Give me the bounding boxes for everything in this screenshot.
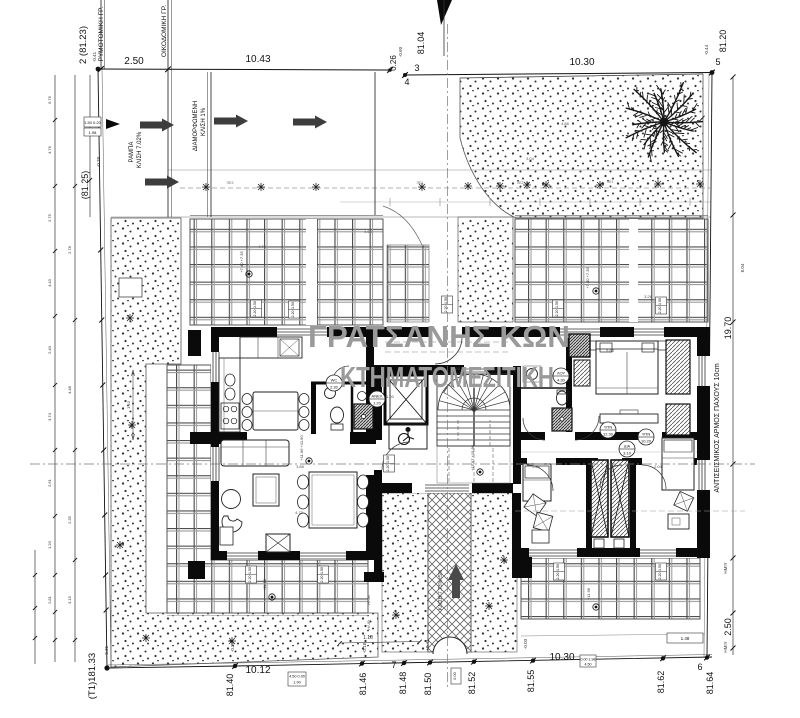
svg-text:1.50: 1.50 <box>248 567 252 574</box>
svg-text:0.00: 0.00 <box>453 672 457 679</box>
svg-text:ΚΛΙΣΗ 7.02%: ΚΛΙΣΗ 7.02% <box>137 131 143 168</box>
svg-text:81.50: 81.50 <box>423 673 433 696</box>
svg-text:-0.18: -0.18 <box>362 642 367 653</box>
svg-text:0.00 1.98: 0.00 1.98 <box>581 658 596 662</box>
svg-text:81.46: 81.46 <box>358 673 368 696</box>
svg-text:ΚΤΗΜΑΤΟΜΕΣΙΤΙΚΗ: ΚΤΗΜΑΤΟΜΕΣΙΤΙΚΗ <box>340 362 554 394</box>
svg-text:2.20: 2.20 <box>555 310 559 317</box>
svg-text:ΗΜΙΥ: ΗΜΙΥ <box>723 641 728 652</box>
svg-text:ΠΕ2: ΠΕ2 <box>517 181 524 185</box>
svg-text:ΚΛΙΣΗ 7.73%<5%: ΚΛΙΣΗ 7.73%<5% <box>438 569 444 610</box>
svg-text:4.50: 4.50 <box>585 663 592 667</box>
svg-text:1.10: 1.10 <box>126 400 131 409</box>
svg-text:-0.60: -0.60 <box>398 46 403 57</box>
svg-text:1.50: 1.50 <box>658 564 662 571</box>
svg-text:2.20: 2.20 <box>320 576 324 583</box>
svg-text:+7.40 +7.35: +7.40 +7.35 <box>585 267 590 289</box>
svg-text:ΔΙΑΜΟΡΦΩΜΕΝΗ: ΔΙΑΜΟΡΦΩΜΕΝΗ <box>193 101 199 151</box>
svg-text:2 (81.23): 2 (81.23) <box>78 26 89 64</box>
svg-text:2.20: 2.20 <box>248 576 252 583</box>
svg-text:4.88: 4.88 <box>561 121 570 126</box>
svg-text:2.81: 2.81 <box>47 595 52 604</box>
svg-text:10.20: 10.20 <box>641 439 652 444</box>
svg-text:-0.39: -0.39 <box>96 156 101 167</box>
svg-text:+7.40 +7.35: +7.40 +7.35 <box>239 251 244 273</box>
svg-text:ΔΙΑ: ΔΙΑ <box>624 444 631 449</box>
svg-text:1.00: 1.00 <box>386 394 395 399</box>
svg-text:+11.96 +11.90: +11.96 +11.90 <box>299 435 304 461</box>
svg-text:2.40: 2.40 <box>47 345 52 354</box>
svg-text:2.20: 2.20 <box>386 465 390 472</box>
svg-text:4.48: 4.48 <box>67 385 72 394</box>
svg-text:3.74: 3.74 <box>47 412 52 421</box>
svg-text:8.04: 8.04 <box>740 263 745 272</box>
svg-text:3.15: 3.15 <box>67 595 72 604</box>
svg-text:81.04: 81.04 <box>416 32 426 55</box>
svg-text:81.62: 81.62 <box>656 671 666 694</box>
svg-text:1.50: 1.50 <box>555 301 559 308</box>
svg-text:-0.44: -0.44 <box>704 44 709 55</box>
svg-text:81.20: 81.20 <box>718 30 728 53</box>
svg-text:1.20: 1.20 <box>373 401 382 406</box>
svg-text:ΗΛΙΘ: ΗΛΙΘ <box>366 620 371 630</box>
svg-text:-0.03: -0.03 <box>523 638 528 649</box>
svg-text:2.78: 2.78 <box>67 245 72 254</box>
svg-text:ΠΕ1: ΠΕ1 <box>417 181 424 185</box>
svg-text:-0.41: -0.41 <box>92 51 97 62</box>
svg-text:4.73: 4.73 <box>258 244 267 249</box>
svg-text:-0.24: -0.24 <box>230 641 235 652</box>
svg-text:3.04: 3.04 <box>532 464 541 469</box>
svg-text:ΛΟΥ: ΛΟΥ <box>557 371 566 376</box>
svg-text:1.20: 1.20 <box>47 540 52 549</box>
svg-text:3.88: 3.88 <box>296 464 305 469</box>
svg-text:1.10: 1.10 <box>363 635 373 641</box>
svg-text:1.50: 1.50 <box>291 302 295 309</box>
svg-text:+11.96: +11.96 <box>262 578 267 591</box>
svg-text:ΥΠΝ: ΥΠΝ <box>642 432 651 437</box>
svg-text:4.73: 4.73 <box>295 510 304 515</box>
svg-text:-0.31: -0.31 <box>104 645 109 656</box>
svg-text:ΚΛΙΣΗ 1%: ΚΛΙΣΗ 1% <box>201 107 207 136</box>
svg-text:6.76: 6.76 <box>47 95 52 104</box>
svg-text:2.50: 2.50 <box>723 618 733 636</box>
svg-text:10.30: 10.30 <box>549 652 574 663</box>
svg-text:4: 4 <box>404 77 409 87</box>
svg-text:(81.25): (81.25) <box>80 171 90 200</box>
svg-text:1.50: 1.50 <box>253 301 257 308</box>
svg-text:4.68: 4.68 <box>364 229 373 234</box>
svg-text:2.04: 2.04 <box>654 464 663 469</box>
svg-text:3.04: 3.04 <box>526 156 535 161</box>
svg-text:1.98: 1.98 <box>89 130 98 135</box>
svg-text:2.30: 2.30 <box>330 385 339 390</box>
svg-text:1.50 0.20: 1.50 0.20 <box>84 120 101 125</box>
svg-text:ΟΙΚΟΔΟΜΙΚΗ ΓΡ.: ΟΙΚΟΔΟΜΙΚΗ ΓΡ. <box>161 5 168 57</box>
svg-text:+11.96: +11.96 <box>586 587 591 600</box>
svg-text:(T1)181.33: (T1)181.33 <box>87 653 98 699</box>
svg-text:ΥΠΝ: ΥΠΝ <box>604 425 613 430</box>
svg-text:ΗΜΙΥ: ΗΜΙΥ <box>723 562 728 573</box>
svg-text:7: 7 <box>391 660 396 670</box>
svg-text:ΠΕ1: ΠΕ1 <box>607 180 614 184</box>
svg-text:1.50: 1.50 <box>658 298 662 305</box>
svg-text:2.50: 2.50 <box>124 56 144 67</box>
svg-text:1.50: 1.50 <box>320 567 324 574</box>
svg-text:2.20: 2.20 <box>556 573 560 580</box>
svg-text:ΠΕ3: ΠΕ3 <box>227 181 234 185</box>
svg-text:2.20: 2.20 <box>658 573 662 580</box>
svg-text:WC: WC <box>331 378 338 383</box>
svg-text:2.61: 2.61 <box>47 478 52 487</box>
svg-text:ΑΝΤΙΣΕΙΣΜΙΚΟΣ ΑΡΜΟΣ ΠΑΧΟΥΣ 10c: ΑΝΤΙΣΕΙΣΜΙΚΟΣ ΑΡΜΟΣ ΠΑΧΟΥΣ 10cm <box>714 363 721 492</box>
svg-text:+0.41: +0.41 <box>425 639 430 651</box>
svg-text:10.30: 10.30 <box>569 57 594 68</box>
svg-text:2.20: 2.20 <box>658 307 662 314</box>
svg-text:4.76: 4.76 <box>47 145 52 154</box>
svg-text:10.12: 10.12 <box>245 665 270 676</box>
svg-text:81.48: 81.48 <box>398 672 408 695</box>
svg-text:2.75: 2.75 <box>47 213 52 222</box>
svg-text:1.48: 1.48 <box>681 636 690 641</box>
svg-text:ΡΥΜΟΤΟΜΙΚΗ ΓΡ.: ΡΥΜΟΤΟΜΙΚΗ ΓΡ. <box>98 6 105 61</box>
svg-text:1.50: 1.50 <box>556 564 560 571</box>
svg-text:81.52: 81.52 <box>467 672 477 695</box>
svg-text:4.50 0.00: 4.50 0.00 <box>289 675 305 679</box>
svg-text:0.26: 0.26 <box>389 55 398 71</box>
svg-text:81.55: 81.55 <box>526 670 536 693</box>
svg-text:2.20: 2.20 <box>253 310 257 317</box>
svg-text:ΗΛΙΘ: ΗΛΙΘ <box>366 595 371 605</box>
svg-text:3: 3 <box>414 63 419 73</box>
svg-text:6: 6 <box>697 662 702 672</box>
svg-text:+15.97 +15.86: +15.97 +15.86 <box>470 444 475 471</box>
svg-text:1.50: 1.50 <box>386 456 390 463</box>
svg-text:81.40: 81.40 <box>225 674 235 697</box>
svg-text:12.30: 12.30 <box>603 432 614 437</box>
svg-text:4.43: 4.43 <box>47 278 52 287</box>
svg-text:1.90: 1.90 <box>293 681 300 685</box>
svg-text:5.88: 5.88 <box>606 348 615 353</box>
svg-text:5: 5 <box>715 57 720 67</box>
svg-text:19.70: 19.70 <box>723 317 733 340</box>
svg-text:4.30: 4.30 <box>557 378 566 383</box>
svg-text:10.43: 10.43 <box>245 54 270 65</box>
svg-text:ΑΝΕΛ: ΑΝΕΛ <box>372 394 383 399</box>
svg-text:ΡΑΜΠΑ: ΡΑΜΠΑ <box>129 142 135 163</box>
svg-text:81.64: 81.64 <box>705 672 715 695</box>
svg-text:3.10: 3.10 <box>623 451 632 456</box>
svg-text:ΓΡΑΤΣΑΝΗΣ ΚΩΝ: ΓΡΑΤΣΑΝΗΣ ΚΩΝ <box>308 319 570 354</box>
svg-text:2.20: 2.20 <box>291 311 295 318</box>
svg-text:2.35: 2.35 <box>67 515 72 524</box>
svg-text:3.26: 3.26 <box>644 294 653 299</box>
